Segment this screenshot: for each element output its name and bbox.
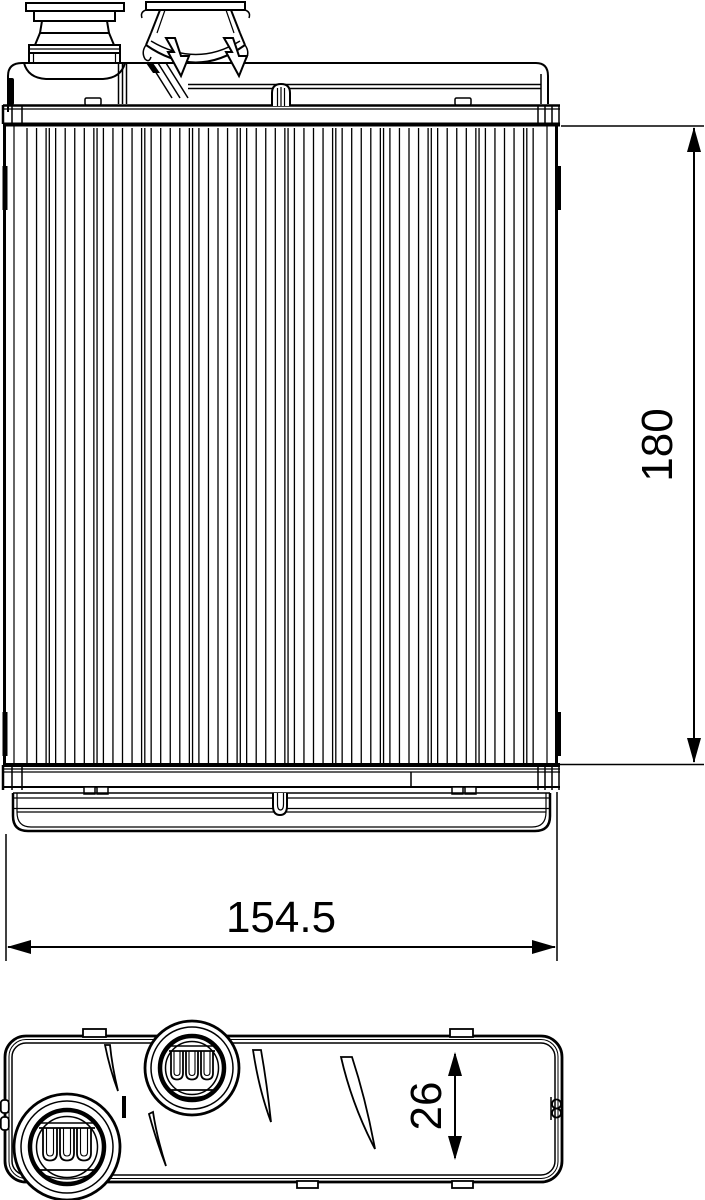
arrowhead-right-icon	[532, 940, 556, 954]
gusset	[149, 1112, 166, 1166]
pipe-port-upper	[145, 1021, 239, 1115]
core-fins	[27, 128, 533, 763]
arrowhead-down-icon	[687, 738, 701, 763]
housing-clip	[552, 1100, 561, 1109]
housing-tab	[297, 1181, 318, 1188]
housing-clip	[1, 1117, 9, 1130]
arrowhead-up-icon	[687, 127, 701, 152]
pipe-port-lower	[14, 1094, 120, 1200]
flange-tab	[85, 98, 101, 105]
housing-clip	[552, 1109, 561, 1118]
housing-tab	[452, 1181, 473, 1188]
top-view: 26	[1, 1021, 562, 1200]
top-flange	[3, 84, 560, 124]
dimension-width: 154.5	[6, 792, 557, 961]
core-frame	[3, 124, 562, 766]
arrowhead-down-icon	[448, 1136, 462, 1160]
gusset	[253, 1050, 271, 1122]
tank-side-clip	[7, 78, 14, 105]
pipe-fitting-right	[142, 2, 250, 76]
gusset	[341, 1057, 375, 1149]
technical-drawing-page: 180 154.5	[0, 0, 705, 1200]
solder-tab	[556, 712, 561, 756]
height-dimension-label: 180	[633, 408, 682, 481]
solder-tab	[556, 166, 561, 210]
arrowhead-up-icon	[448, 1052, 462, 1076]
housing-tab	[83, 1029, 106, 1037]
arrowhead-left-icon	[7, 940, 31, 954]
flange-tab	[455, 98, 471, 105]
dimension-depth: 26	[402, 1052, 462, 1160]
front-view: 180 154.5	[3, 2, 705, 961]
tank-center-joint	[273, 793, 287, 815]
depth-dimension-label: 26	[402, 1082, 451, 1131]
bottom-tank	[13, 793, 550, 831]
solder-tab	[3, 712, 8, 756]
heater-core-drawing: 180 154.5	[0, 0, 705, 1200]
solder-tab	[3, 166, 8, 210]
pipe-fitting-left	[24, 3, 125, 79]
gusset	[105, 1045, 118, 1091]
housing-tab	[450, 1029, 473, 1037]
bottom-flange	[3, 765, 560, 794]
width-dimension-label: 154.5	[226, 893, 336, 942]
housing-clip	[1, 1100, 9, 1113]
dimension-height: 180	[558, 126, 704, 765]
